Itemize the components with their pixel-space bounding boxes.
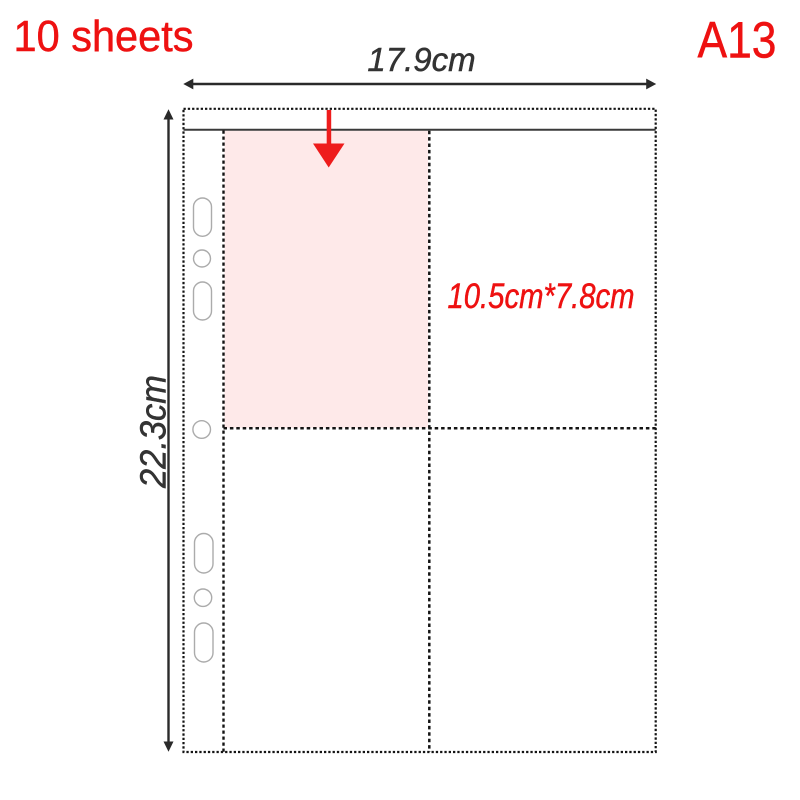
svg-text:22.3cm: 22.3cm [133, 375, 174, 489]
svg-text:A13: A13 [698, 12, 777, 69]
svg-text:17.9cm: 17.9cm [367, 41, 475, 78]
svg-text:10 sheets: 10 sheets [14, 12, 194, 61]
svg-text:10.5cm*7.8cm: 10.5cm*7.8cm [448, 277, 635, 316]
